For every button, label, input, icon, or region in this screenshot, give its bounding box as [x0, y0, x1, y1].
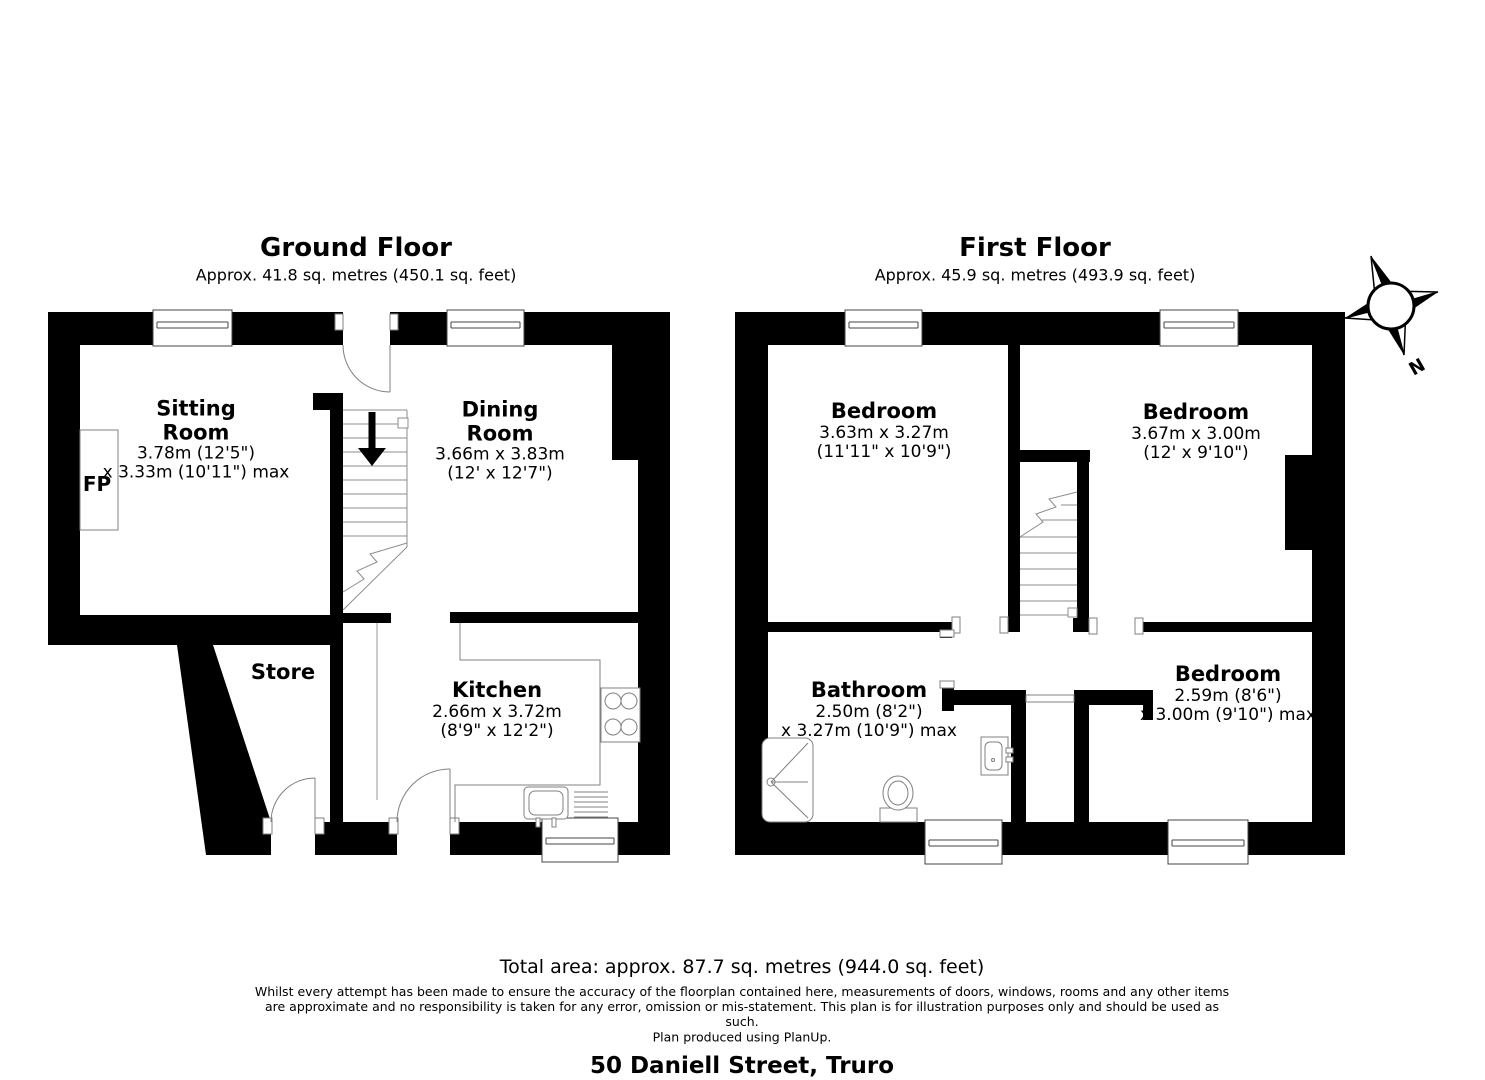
- label-bedroom1: Bedroom 3.63m x 3.27m (11'11" x 10'9"): [817, 400, 952, 462]
- ff-bathtub: [762, 738, 813, 822]
- property-address: 50 Daniell Street, Truro: [590, 1053, 894, 1079]
- ff-stairs: [1020, 492, 1077, 617]
- ff-window-bathroom: [925, 820, 1002, 864]
- total-area-text: Total area: approx. 87.7 sq. metres (944…: [500, 956, 985, 978]
- gf-hob: [601, 688, 640, 742]
- first-floor-area: Approx. 45.9 sq. metres (493.9 sq. feet): [875, 266, 1196, 285]
- first-floor-title: First Floor: [959, 233, 1111, 263]
- ff-window-bedroom1: [845, 310, 922, 346]
- ff-door-jambs: [940, 617, 1143, 702]
- gf-store-door: [263, 778, 324, 834]
- floorplan-page: N Ground Floor Approx. 41.8 sq. metres (…: [0, 0, 1485, 1080]
- gf-window-sitting: [153, 310, 232, 346]
- disclaimer-text: Whilst every attempt has been made to en…: [247, 985, 1237, 1029]
- label-sitting-room: Sitting Room 3.78m (12'5") x 3.33m (10'1…: [103, 397, 290, 482]
- gf-back-door: [389, 769, 459, 834]
- floorplan-drawing: N: [0, 0, 1485, 1080]
- label-dining-room: Dining Room 3.66m x 3.83m (12' x 12'7"): [435, 398, 565, 483]
- label-store: Store: [251, 661, 315, 685]
- gf-stairs-down-arrow: [358, 412, 386, 466]
- gf-window-dining: [447, 310, 524, 346]
- gf-walls: [48, 312, 670, 855]
- gf-front-door: [335, 314, 398, 392]
- compass-circle: [1368, 283, 1414, 329]
- compass-icon: N: [1345, 256, 1438, 380]
- ground-floor-title: Ground Floor: [260, 233, 452, 263]
- ff-walls: [735, 312, 1345, 855]
- ff-basin: [981, 737, 1013, 775]
- ff-toilet: [880, 776, 917, 822]
- produced-by-text: Plan produced using PlanUp.: [653, 1030, 832, 1045]
- ground-floor-plan: [48, 310, 670, 862]
- label-bathroom: Bathroom 2.50m (8'2") x 3.27m (10'9") ma…: [781, 679, 957, 741]
- ff-window-bedroom2: [1160, 310, 1238, 346]
- compass-north-label: N: [1406, 355, 1430, 381]
- label-bedroom2: Bedroom 3.67m x 3.00m (12' x 9'10"): [1131, 401, 1261, 463]
- label-bedroom3: Bedroom 2.59m (8'6") x 3.00m (9'10") max: [1140, 663, 1316, 725]
- ground-floor-area: Approx. 41.8 sq. metres (450.1 sq. feet): [196, 266, 517, 285]
- label-kitchen: Kitchen 2.66m x 3.72m (8'9" x 12'2"): [432, 679, 562, 741]
- label-fireplace: FP: [83, 472, 111, 496]
- ff-window-bedroom3: [1168, 820, 1248, 864]
- first-floor-plan: [735, 310, 1345, 864]
